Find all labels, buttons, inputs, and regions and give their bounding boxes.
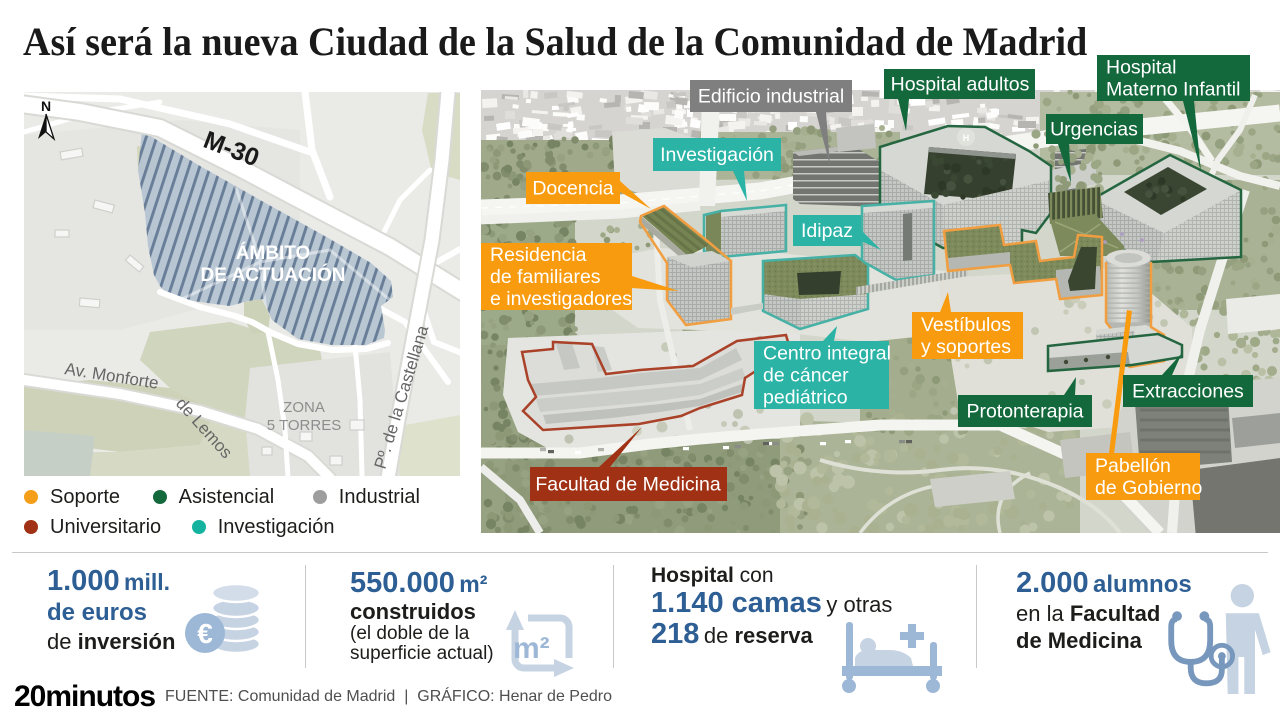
svg-text:Pabellón: Pabellón <box>1095 455 1171 477</box>
svg-text:Centro integral: Centro integral <box>763 343 891 365</box>
svg-text:Investigación: Investigación <box>660 144 774 166</box>
svg-text:e investigadores: e investigadores <box>490 288 632 310</box>
svg-text:Urgencias: Urgencias <box>1050 119 1138 141</box>
svg-text:€: € <box>197 618 213 649</box>
svg-text:y soportes: y soportes <box>921 336 1011 358</box>
svg-text:de familiares: de familiares <box>490 266 601 288</box>
svg-text:Docencia: Docencia <box>532 178 613 200</box>
svg-text:H: H <box>963 133 970 143</box>
svg-text:Extracciones: Extracciones <box>1132 381 1244 403</box>
svg-text:Materno Infantil: Materno Infantil <box>1106 79 1240 101</box>
svg-text:Edificio industrial: Edificio industrial <box>698 86 844 108</box>
svg-text:Residencia: Residencia <box>490 244 587 266</box>
svg-text:de cáncer: de cáncer <box>763 365 849 387</box>
svg-text:Protonterapia: Protonterapia <box>966 401 1083 423</box>
svg-text:Hospital adultos: Hospital adultos <box>891 74 1030 96</box>
svg-text:Vestíbulos: Vestíbulos <box>921 314 1011 336</box>
svg-text:Idipaz: Idipaz <box>801 220 853 242</box>
svg-text:pediátrico: pediátrico <box>763 387 848 409</box>
svg-text:Hospital: Hospital <box>1106 57 1176 79</box>
svg-text:de Gobierno: de Gobierno <box>1095 477 1202 499</box>
svg-text:Facultad de Medicina: Facultad de Medicina <box>535 474 721 496</box>
svg-text:m²: m² <box>513 632 550 665</box>
